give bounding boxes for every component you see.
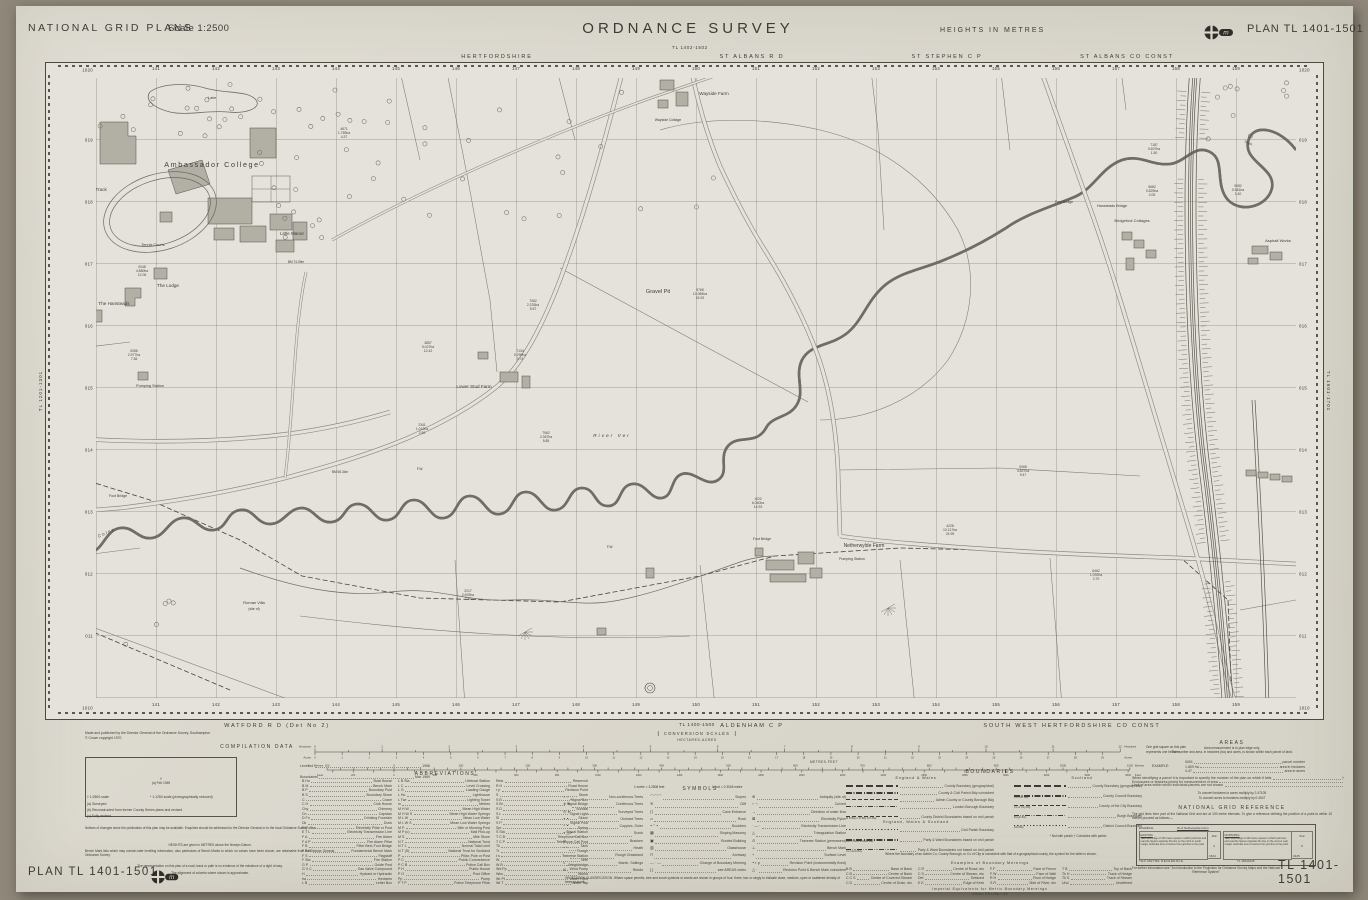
border-ticks-left xyxy=(48,74,50,708)
map-label: Pumping Station xyxy=(136,384,164,388)
term: Coniferous Trees xyxy=(616,801,643,808)
dotted-leader xyxy=(312,861,372,862)
symbol-glyph-icon: ⊓ xyxy=(650,852,653,859)
boundary-row: M B Bdy U D Bdy R D BdyCounty District B… xyxy=(846,810,994,820)
abbr-key: C D xyxy=(846,881,852,886)
term: Bench Mark xyxy=(827,845,846,852)
imperial-title: Imperial Equivalents for Metric Boundary… xyxy=(932,887,1047,891)
dotted-leader xyxy=(411,833,469,834)
boundary-line-sample xyxy=(846,782,898,789)
dotted-leader xyxy=(756,858,823,859)
dotted-leader xyxy=(504,805,565,806)
roads xyxy=(96,78,1296,698)
svg-text:300: 300 xyxy=(592,764,597,768)
dotted-leader xyxy=(407,796,471,797)
parish-label: ST STEPHEN C P xyxy=(911,54,982,60)
scale-label: Scale 1:2500 xyxy=(168,23,229,34)
map-label: Roman Villa xyxy=(243,600,265,605)
compilation-fn4: (b) Reconstructed from former County Ser… xyxy=(87,808,182,812)
symbol-glyph-icon: , , , xyxy=(563,852,568,859)
term: County of the City Boundary xyxy=(1099,805,1142,809)
svg-text:2200: 2200 xyxy=(840,774,846,777)
svg-text:11: 11 xyxy=(1052,745,1055,749)
svg-text:11: 11 xyxy=(612,756,615,760)
boundaries-ew-title: England & Wales xyxy=(896,776,937,780)
dotted-leader xyxy=(1273,779,1341,780)
dotted-leader xyxy=(504,786,567,787)
border-ticks-right xyxy=(1316,74,1318,708)
map-label: Wayside Farm xyxy=(699,91,729,96)
svg-text:0: 0 xyxy=(314,756,316,760)
term: Sloping Masonry xyxy=(720,830,746,837)
svg-text:100: 100 xyxy=(459,764,464,768)
dotted-leader xyxy=(900,808,952,809)
dotted-leader xyxy=(853,874,886,875)
dotted-leader xyxy=(1225,786,1343,787)
symbol-row: [ ]see AREAS notes xyxy=(650,867,746,874)
dotted-leader xyxy=(654,858,730,859)
ngr-ref-value: TL 15240125 xyxy=(1237,859,1255,863)
term: Boulders xyxy=(732,823,746,830)
dotted-leader xyxy=(1069,870,1112,871)
abbreviations-title: ABBREVIATIONS xyxy=(415,771,476,777)
symbol-row: ≈Marsh, Saltings xyxy=(563,860,643,867)
symbol-row: ∘ ∘Orchard Trees xyxy=(563,816,643,823)
boundary-line-sample xyxy=(846,796,898,803)
symbol-row: ∏Cave Entrance xyxy=(650,809,746,816)
svg-text:5: 5 xyxy=(450,756,452,760)
boundary-line-icon xyxy=(846,792,898,794)
ngr-title: NATIONAL GRID REFERENCE xyxy=(1178,805,1285,811)
dotted-leader xyxy=(306,800,381,801)
svg-text:400: 400 xyxy=(659,764,664,768)
dotted-leader xyxy=(762,828,800,829)
term: Parly & Ward Boundaries based on civil p… xyxy=(923,839,994,843)
abbreviations-col2: L B StaLifeboat StationL CLevel Crossing… xyxy=(398,779,490,886)
term: Antiquity (site of) xyxy=(820,794,846,801)
symbol-glyph-icon: ⌐ ¬ xyxy=(752,801,758,808)
svg-text:4: 4 xyxy=(423,756,425,760)
dotted-leader xyxy=(309,847,355,848)
compilation-fn1: † 1:2500 scale xyxy=(87,795,109,799)
symbol-row: ∘ △ ∘Scrub xyxy=(563,830,643,837)
parcel-label: 56820.829ha2.05 xyxy=(1146,185,1158,197)
symbol-glyph-icon: ⊥ xyxy=(752,845,755,852)
dotted-leader xyxy=(757,814,809,815)
svg-text:4: 4 xyxy=(583,745,585,749)
svg-text:10: 10 xyxy=(984,745,988,749)
dotted-leader xyxy=(655,872,717,873)
dotted-leader xyxy=(567,865,617,866)
imprint-copyright: © Crown copyright 1970 xyxy=(85,736,121,740)
dotted-leader xyxy=(1068,787,1092,788)
term: Slopes xyxy=(735,794,746,801)
map-label: The Hansteads xyxy=(98,301,130,306)
symbol-glyph-icon: ∘ r p xyxy=(752,860,760,867)
mereing-row: C DCentre of Drain, etc xyxy=(846,881,912,886)
term: Letter Box xyxy=(376,881,392,886)
boundaries-scot-title: Scotland xyxy=(1071,776,1092,780)
svg-text:15: 15 xyxy=(721,756,724,760)
compilation-note-benchmarks: Bench Mark lists which may contain later… xyxy=(85,849,335,857)
map-label: Lake xyxy=(208,96,216,100)
boundary-row: Civil Parish Boundary xyxy=(846,826,994,833)
dotted-leader xyxy=(900,831,960,832)
symbol-glyph-icon: ○ ○ xyxy=(563,794,569,801)
symbol-row: →Direction of water flow xyxy=(752,809,846,816)
symbol-glyph-icon: Ψ xyxy=(563,867,566,874)
dotted-leader xyxy=(408,884,452,885)
symbol-row: · — ·Electricity Transmission Line xyxy=(752,823,846,830)
map-label: Pumping Station xyxy=(839,557,865,561)
dotted-leader xyxy=(505,782,571,783)
dotted-leader xyxy=(502,791,564,792)
map-label: F.W. xyxy=(607,545,613,549)
svg-text:1100: 1100 xyxy=(1127,764,1133,768)
term: Reeds xyxy=(633,867,643,874)
dotted-leader xyxy=(998,874,1035,875)
mereings-col1: B BBase of BankC BCentre of BankC C SCen… xyxy=(846,867,912,886)
dotted-leader xyxy=(925,884,962,885)
field-boundaries xyxy=(96,78,1296,698)
term: Archway xyxy=(732,852,746,859)
svg-text:1800: 1800 xyxy=(758,774,764,777)
parcel-label: 00484.880ha12.06 xyxy=(136,265,148,277)
abbr-key: 4.47 xyxy=(1185,769,1192,774)
svg-text:8: 8 xyxy=(532,756,534,760)
dotted-leader xyxy=(1219,782,1342,783)
svg-text:5: 5 xyxy=(650,745,652,749)
county-label: HERTFORDSHIRE xyxy=(461,54,532,60)
symbol-row: ⊓Archway xyxy=(650,852,746,859)
dotted-leader xyxy=(309,884,375,885)
dotted-leader xyxy=(572,807,615,808)
compilation-fn3: (a) Surveyed xyxy=(87,802,106,806)
dotted-leader xyxy=(1200,767,1278,768)
symbol-glyph-icon: ∘ △ ∘ xyxy=(563,830,573,837)
map-label: Ambassador College xyxy=(164,160,260,169)
svg-text:25: 25 xyxy=(992,756,995,760)
symbol-row: ⌒⌒⌒Slopes xyxy=(650,794,746,801)
ngr-intro: The grid lines form part of the National… xyxy=(1132,812,1332,820)
dotted-leader xyxy=(307,879,376,880)
svg-text:m: m xyxy=(1223,30,1229,37)
map-label: The Lodge xyxy=(157,283,179,288)
svg-text:900: 900 xyxy=(994,764,999,768)
areas-convert2: To convert acres to hectares multiply by… xyxy=(1132,796,1332,800)
dotted-leader xyxy=(1193,772,1283,773)
boundary-row: County Boundary (geographical) xyxy=(846,782,994,789)
map-label: Little Manor xyxy=(280,231,304,236)
term: Electricity Pylon xyxy=(821,816,846,823)
parcel-label: 79622.367ha5.85 xyxy=(540,431,552,443)
dotted-leader xyxy=(312,842,365,843)
boundaries-ews-rows: Civil Parish BoundaryBoro Const & Ward B… xyxy=(846,826,994,853)
constituency-label: ST ALBANS CO CONST xyxy=(1080,54,1174,60)
symbols-col1: ○ ○Non-coniferous Trees∗ ∗Coniferous Tre… xyxy=(563,794,643,874)
symbol-row: +Surface Level xyxy=(752,852,846,859)
term: Bracken xyxy=(630,838,643,845)
svg-text:3: 3 xyxy=(515,745,517,749)
dotted-leader xyxy=(406,838,472,839)
dotted-leader xyxy=(857,879,869,880)
note-text: Limit of area within which individual pa… xyxy=(1132,784,1223,788)
svg-text:800: 800 xyxy=(927,764,932,768)
dotted-leader xyxy=(311,782,372,783)
plan-number: PLAN TL 1401-1501 xyxy=(1247,23,1364,35)
dotted-leader xyxy=(570,821,619,822)
dotted-leader xyxy=(570,828,618,829)
dotted-leader xyxy=(1071,874,1106,875)
dotted-leader xyxy=(409,865,465,866)
railway xyxy=(1185,78,1269,698)
parcel-label: 70622.233ha5.57 xyxy=(527,299,539,311)
svg-text:1000: 1000 xyxy=(595,774,601,777)
map-label: Bridgefoot Cottages xyxy=(1114,218,1149,223)
term: Non-coniferous Trees xyxy=(609,794,643,801)
symbol-row: ▥Glasshouse xyxy=(650,845,746,852)
svg-text:0: 0 xyxy=(314,745,316,749)
svg-text:7: 7 xyxy=(784,745,786,749)
term: Surface Level xyxy=(824,852,846,859)
boundary-row: Co of City BdyCounty of the City Boundar… xyxy=(1014,799,1142,809)
parcel-label: 71870.607ha1.50 xyxy=(1148,143,1160,155)
mereings-col3: F FFace of FenceF WFace of WallR HRoot o… xyxy=(990,867,1056,886)
dotted-leader xyxy=(504,865,566,866)
dotted-leader xyxy=(567,843,628,844)
dotted-leader xyxy=(757,843,799,844)
symbol-glyph-icon: ⌒⌒⌒ xyxy=(650,794,661,801)
boundary-line-sample xyxy=(846,789,898,796)
dotted-leader xyxy=(759,807,833,808)
boundary-line-sample: Boro Const & Ward Bdy xyxy=(846,836,898,843)
boundary-key: Co of City Bdy xyxy=(1014,806,1066,809)
dotted-leader xyxy=(404,879,479,880)
parcel-label: 46711.769ha4.37 xyxy=(338,127,350,139)
term: Surveyed Trees xyxy=(618,809,643,816)
boundary-row: Co Cncl BdyCounty Council Boundary xyxy=(1014,789,1142,799)
dotted-leader xyxy=(402,856,460,857)
abbr-key: L B xyxy=(302,881,307,886)
svg-text:18: 18 xyxy=(802,756,805,760)
boundary-line-sample xyxy=(1014,782,1066,789)
dotted-leader xyxy=(311,819,363,820)
symbol-row: △ ·Revision Point & Bench Mark coinciden… xyxy=(752,867,846,874)
svg-text:3600: 3600 xyxy=(1125,774,1131,777)
svg-text:Acres: Acres xyxy=(303,756,311,760)
ngr-northing-v2: 5 xyxy=(1292,844,1312,848)
border-ticks-bottom xyxy=(58,712,1310,714)
dotted-leader xyxy=(410,810,461,811)
levelled-row: Levelled1956 xyxy=(300,764,430,769)
adjacent-sheet-west-label: TL 1201-1301 xyxy=(38,371,43,411)
symbol-row: ⊠Electricity Pylon xyxy=(752,816,846,823)
svg-text:1000: 1000 xyxy=(1060,764,1067,768)
dotted-leader xyxy=(310,865,373,866)
symbol-row: △Triangulation Station xyxy=(752,830,846,837)
boundaries-flags: * Not with parish † Coincides with paris… xyxy=(1050,834,1107,838)
dotted-leader xyxy=(1068,807,1098,808)
boundary-key: Co Cncl Bdy xyxy=(1014,796,1066,799)
svg-text:13: 13 xyxy=(667,756,670,760)
compilation-title: COMPILATION DATA xyxy=(220,744,294,750)
imprint-publisher: Made and published by the Director Gener… xyxy=(85,731,210,735)
ngr-example-point: W of Netherwylde Farm xyxy=(1177,826,1209,830)
ordnance-survey-logo-bottom-icon: m xyxy=(150,869,184,885)
svg-text:19: 19 xyxy=(829,756,832,760)
svg-text:800: 800 xyxy=(555,774,560,777)
svg-text:200: 200 xyxy=(525,764,530,768)
dotted-leader xyxy=(655,850,726,851)
term: see AREAS notes xyxy=(718,867,746,874)
plan-number-bottom-left: PLAN TL 1401-1501 xyxy=(28,866,158,878)
ngr-easting-v2: 4 xyxy=(1208,844,1220,848)
symbol-row: ⊙ ∗Surveyed Trees xyxy=(563,809,643,816)
dotted-leader xyxy=(900,841,922,842)
boundaries-ew-rows: County Boundary (geographical)County & C… xyxy=(846,782,994,820)
symbol-glyph-icon: ∘ ∘ xyxy=(563,816,569,823)
mereings-col4: T BTop of BankTk HTrack of HedgeTk STrac… xyxy=(1062,867,1132,886)
abbr-key: S R xyxy=(990,881,996,886)
symbol-row: ∘ ° ∘Boulders xyxy=(650,823,746,830)
symbol-glyph-icon: ▣ xyxy=(650,838,654,845)
dotted-leader xyxy=(997,884,1027,885)
areas-notes: When identifying a parcel it is importan… xyxy=(1132,776,1344,788)
dotted-leader xyxy=(503,800,569,801)
term: Police Telephone Pillar xyxy=(454,881,490,886)
svg-text:2400: 2400 xyxy=(881,774,887,777)
boundary-line-sample: Co Cncl Bdy xyxy=(1014,792,1066,799)
boundary-line-sample: M B Bdy U D Bdy R D Bdy xyxy=(846,813,898,820)
dotted-leader xyxy=(570,858,614,859)
svg-text:3: 3 xyxy=(396,756,398,760)
symbol-row: ⊙Traverse Station (permanent) xyxy=(752,838,846,845)
svg-text:8: 8 xyxy=(851,745,853,749)
dotted-leader xyxy=(1068,797,1102,798)
boundary-key: Boro Const & Ward Bdy xyxy=(846,840,898,843)
term: Glasshouse xyxy=(727,845,746,852)
dotted-leader xyxy=(414,814,448,815)
ordnance-survey-logo-icon: m xyxy=(1203,24,1239,41)
dotted-leader xyxy=(410,819,462,820)
symbols-col2: ⌒⌒⌒Slopes≋Cliff∏Cave Entrance▱Rock∘ ° ∘B… xyxy=(650,794,746,874)
dotted-leader xyxy=(312,833,346,834)
dotted-leader xyxy=(572,814,617,815)
dotted-leader xyxy=(405,842,466,843)
symbol-glyph-icon: → xyxy=(752,809,756,816)
symbols-title: SYMBOLS xyxy=(682,786,717,792)
ngr-easting-v1: 152 xyxy=(1208,834,1220,838)
abbreviations-col1: B HoBoat HouseB MBench MarkB PBoundary P… xyxy=(302,779,392,886)
compilation-note-heights: HEIGHTS are given in METRES above the Ne… xyxy=(85,843,335,847)
svg-text:12: 12 xyxy=(639,756,642,760)
symbol-row: ○ ○Non-coniferous Trees xyxy=(563,794,643,801)
symbol-glyph-icon: ≈ xyxy=(563,860,565,867)
boundary-key: Burgh Bdy xyxy=(1014,816,1066,819)
term: Roofed Building xyxy=(721,838,746,845)
term: Rock xyxy=(738,816,746,823)
symbol-row: ∘ r pRevision Point (instrumentally fixe… xyxy=(752,860,846,867)
plan-number-bottom-right: TL 1401-1501 xyxy=(1278,858,1368,886)
term: Admin County or County Borough Bdy xyxy=(936,799,994,803)
dotted-leader xyxy=(655,836,718,837)
symbol-row: ⌐ ¬Culvert xyxy=(752,801,846,808)
boundary-row: Admin County or County Borough Bdy xyxy=(846,796,994,803)
svg-text:m: m xyxy=(169,874,174,881)
dotted-leader xyxy=(308,814,377,815)
boundary-line-sample: Co of City Bdy xyxy=(1014,802,1066,809)
areas-convert1: To convert hectares to acres multiply by… xyxy=(1132,791,1332,795)
map-label: Asphalt Works xyxy=(1265,238,1291,243)
dotted-leader xyxy=(505,884,570,885)
svg-text:14: 14 xyxy=(694,756,697,760)
note-symbol: † xyxy=(1342,776,1344,781)
abbr-key: Wr T xyxy=(496,881,504,886)
dotted-leader xyxy=(900,818,920,819)
dotted-leader xyxy=(306,875,358,876)
dotted-leader xyxy=(568,872,632,873)
areas-example-row: 4.47area in acres xyxy=(1185,769,1305,774)
svg-text:3200: 3200 xyxy=(1044,774,1050,777)
symbol-glyph-icon: ~ ∘ xyxy=(563,823,569,830)
term: Traverse Station (permanent) xyxy=(800,838,846,845)
dotted-leader xyxy=(405,791,464,792)
symbol-glyph-icon: ∗ ∗ xyxy=(563,801,570,808)
dotted-leader xyxy=(1194,763,1280,764)
abbr-row: L BLetter Box xyxy=(302,881,392,886)
dotted-leader xyxy=(408,800,466,801)
boundary-line-sample xyxy=(846,826,898,833)
symbol-glyph-icon: ∘ ° ∘ xyxy=(650,823,658,830)
dotted-leader xyxy=(503,814,568,815)
dotted-leader xyxy=(309,796,365,797)
boundary-line-icon xyxy=(846,806,898,807)
map-label: Foot Bridge xyxy=(753,537,771,541)
ngr-northing-v1: 012 xyxy=(1292,834,1312,838)
dotted-leader xyxy=(926,870,952,871)
dotted-leader xyxy=(507,838,556,839)
symbol-row: ψBracken xyxy=(563,838,643,845)
dotted-leader xyxy=(1068,827,1102,828)
conversion-scales-title: CONVERSION SCALES xyxy=(658,731,736,736)
adjacent-sheet-east-label: TL 1601-1701 xyxy=(1326,371,1331,411)
dotted-leader xyxy=(402,805,477,806)
symbol-glyph-icon: ⊙ ∗ xyxy=(563,809,570,816)
ngr-northing-text: Take south edge of 100 metre square in w… xyxy=(1225,837,1291,846)
svg-text:26: 26 xyxy=(1020,756,1023,760)
symbol-row: ▦Sloping Masonry xyxy=(650,830,746,837)
border-ticks-top xyxy=(58,65,1310,67)
map-label: F.W. xyxy=(417,467,423,471)
vegetation-note: VEGETATION CLASSIFICATION. Where space p… xyxy=(565,876,840,884)
term: Rough Grassland xyxy=(615,852,643,859)
term: Marsh, Saltings xyxy=(619,860,643,867)
compilation-box-date: (a) Feb 1969 xyxy=(86,781,236,785)
symbol-glyph-icon: + xyxy=(752,852,754,859)
boundary-line-icon xyxy=(846,799,898,800)
symbol-row: ▣Roofed Building xyxy=(650,838,746,845)
svg-text:24: 24 xyxy=(965,756,968,760)
ngr-easting-v3: 1524 xyxy=(1209,854,1216,858)
term: London Borough Boundary xyxy=(953,806,994,810)
map-label: BM 74.09m xyxy=(288,260,305,264)
dotted-leader xyxy=(308,824,383,825)
term: Undefined xyxy=(1116,881,1132,886)
boundaries-note: Where the boundary of an Admin Co, Count… xyxy=(846,852,1136,856)
boundary-row: Boro Const & Ward BdyParly & Ward Bounda… xyxy=(846,833,994,843)
term: Revision Point & Bench Mark coincident xyxy=(783,867,846,874)
boundary-row: County Boundary (geographical) xyxy=(1014,782,1142,789)
